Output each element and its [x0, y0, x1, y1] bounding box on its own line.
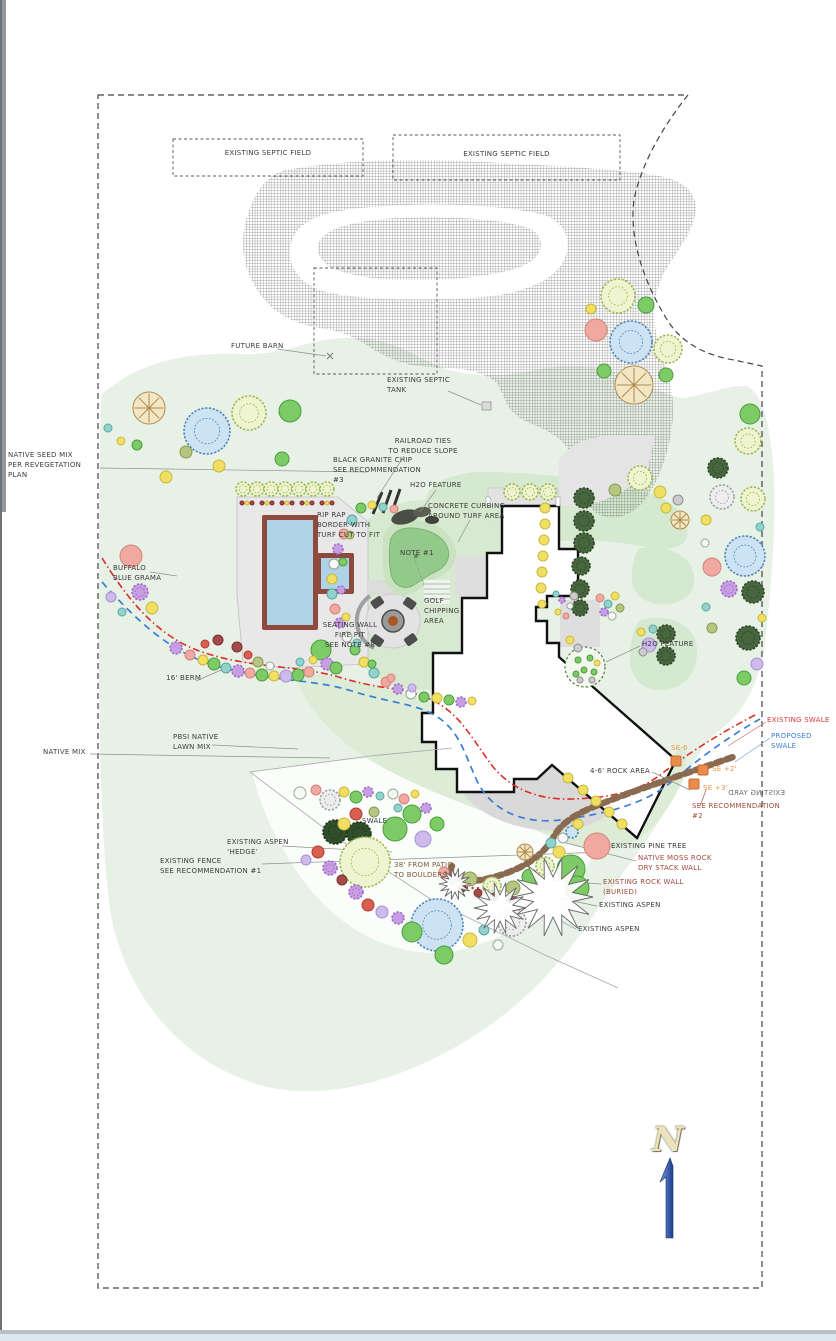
teal-plant-symbol [394, 804, 402, 812]
yellow-plant-symbol [305, 501, 309, 505]
green-plant-symbol [444, 695, 454, 705]
window-left-strip [2, 0, 6, 512]
yellow-plant-symbol [555, 609, 561, 615]
green-plant-symbol [330, 662, 342, 674]
lavender-plant-symbol [376, 906, 388, 918]
sketch-lime-plant-symbol [628, 466, 652, 490]
teal-plant-symbol [604, 600, 612, 608]
purple-plant-symbol [170, 642, 182, 654]
yellow-plant-symbol [566, 636, 574, 644]
maroon-plant-symbol [232, 642, 242, 652]
grey-plant-symbol [574, 644, 582, 652]
green-plant-symbol [597, 364, 611, 378]
olive-plant-symbol [369, 807, 379, 817]
pink-plant-symbol [304, 667, 314, 677]
pink-plant-symbol [584, 833, 610, 859]
white-plant-symbol [329, 559, 339, 569]
pine-plant-symbol [574, 511, 594, 531]
sketch-lime-plant-symbol [504, 484, 520, 500]
green-plant-symbol [638, 297, 654, 313]
yellow-plant-symbol [359, 657, 369, 667]
olive-plant-symbol [180, 446, 192, 458]
green-plant-symbol [403, 805, 421, 823]
green-plant-symbol [368, 660, 376, 668]
olive-plant-symbol [253, 657, 263, 667]
pine-plant-symbol [742, 581, 764, 603]
yellow-plant-symbol [327, 574, 337, 584]
grey-plant-symbol [639, 648, 647, 656]
olive-plant-symbol [616, 604, 624, 612]
red-plant-symbol [350, 808, 362, 820]
purple-plant-symbol [337, 586, 345, 594]
lavender-plant-symbol [408, 684, 416, 692]
teal-plant-symbol [756, 523, 764, 531]
teal-plant-symbol [376, 792, 384, 800]
patio-west [455, 556, 487, 596]
purple-plant-symbol [392, 912, 404, 924]
sketch-lime-plant-symbol [340, 837, 390, 887]
sketch-lime-plant-symbol [278, 482, 292, 496]
sketch-lime-plant-symbol [264, 482, 278, 496]
grey-plant-symbol [570, 592, 578, 600]
lavender-plant-symbol [751, 658, 763, 670]
pine-plant-symbol [657, 625, 675, 643]
white-plant-symbol [608, 612, 616, 620]
pink-plant-symbol [585, 319, 607, 341]
teal-plant-symbol [104, 424, 112, 432]
yellow-plant-symbol [411, 790, 419, 798]
yellow-plant-symbol [213, 460, 225, 472]
pink-plant-symbol [596, 594, 604, 602]
orange-plant-symbol [698, 765, 708, 775]
yellow-plant-symbol [265, 501, 269, 505]
purple-plant-symbol [456, 697, 466, 707]
yellow-plant-symbol [325, 501, 329, 505]
teal-plant-symbol [369, 668, 379, 678]
maroon-plant-symbol [270, 501, 274, 505]
yellow-plant-symbol [617, 819, 627, 829]
white-plant-symbol [266, 662, 274, 670]
white-plant-symbol [701, 539, 709, 547]
pine-plant-symbol [574, 488, 594, 508]
sketch-lime-plant-symbol [540, 484, 556, 500]
yellow-plant-symbol [573, 819, 583, 829]
yellow-plant-symbol [537, 567, 547, 577]
white-plant-symbol [493, 940, 503, 950]
green-plant-symbol [430, 817, 444, 831]
maroon-plant-symbol [260, 501, 264, 505]
lavender-plant-symbol [301, 855, 311, 865]
teal-plant-symbol [649, 625, 657, 633]
greysketch-plant-symbol [320, 790, 340, 810]
green-plant-symbol [435, 946, 453, 964]
green-plant-symbol [279, 400, 301, 422]
sketch-lime-plant-symbol [306, 482, 320, 496]
teal-plant-symbol [379, 503, 387, 511]
purple-plant-symbol [333, 544, 343, 554]
pine-plant-symbol [572, 600, 588, 616]
yellow-plant-symbol [563, 773, 573, 783]
purple-plant-symbol [721, 581, 737, 597]
sketch-lime-plant-symbol [236, 482, 250, 496]
maroon-plant-symbol [300, 501, 304, 505]
green-plant-symbol [339, 558, 347, 566]
window-bottom-bar[interactable] [0, 1330, 836, 1341]
yellow-plant-symbol [661, 503, 671, 513]
red-plant-symbol [244, 651, 252, 659]
yellow-plant-symbol [586, 304, 596, 314]
pine-plant-symbol [657, 647, 675, 665]
yellow-plant-symbol [468, 697, 476, 705]
white-plant-symbol [294, 787, 306, 799]
teal-plant-symbol [553, 591, 559, 597]
red-plant-symbol [362, 899, 374, 911]
north-letter: N [638, 1120, 698, 1160]
yellow-plant-symbol [245, 501, 249, 505]
site-plan-canvas [0, 0, 836, 1341]
grey-plant-symbol [577, 677, 583, 683]
yellow-plant-symbol [368, 501, 376, 509]
yellow-plant-symbol [553, 846, 565, 858]
sketch-blue-plant-symbol [610, 321, 652, 363]
green-plant-symbol [587, 655, 593, 661]
teal-plant-symbol [353, 639, 361, 647]
purple-plant-symbol [600, 608, 608, 616]
yellow-plant-symbol [117, 437, 125, 445]
red-plant-symbol [312, 846, 324, 858]
north-arrow: N [638, 1120, 698, 1250]
golf-steps [424, 580, 450, 604]
maroon-plant-symbol [320, 501, 324, 505]
purple-plant-symbol [393, 684, 403, 694]
green-plant-symbol [591, 669, 597, 675]
north-arrow-icon [653, 1156, 683, 1240]
greysketch-plant-symbol [710, 485, 734, 509]
yellow-plant-symbol [146, 602, 158, 614]
yellow-plant-symbol [637, 628, 645, 636]
purple-plant-symbol [132, 584, 148, 600]
yellow-plant-symbol [338, 818, 350, 830]
star-tan-plant-symbol [133, 392, 165, 424]
green-plant-symbol [419, 692, 429, 702]
maroon-plant-symbol [250, 501, 254, 505]
green-plant-symbol [275, 452, 289, 466]
maroon-plant-symbol [337, 875, 347, 885]
pink-plant-symbol [330, 604, 340, 614]
yellow-plant-symbol [591, 796, 601, 806]
purple-plant-symbol [363, 787, 373, 797]
sketch-blue-plant-symbol [725, 536, 765, 576]
yellow-plant-symbol [342, 613, 350, 621]
green-plant-symbol [383, 817, 407, 841]
maroon-plant-symbol [290, 501, 294, 505]
pink-plant-symbol [703, 558, 721, 576]
sketch-lime-plant-symbol [654, 335, 682, 363]
site-plan-page: { "north": { "letter": "N" }, "labels": … [0, 0, 836, 1341]
orange-plant-symbol [671, 756, 681, 766]
grey-plant-symbol [589, 677, 595, 683]
teal-plant-symbol [221, 663, 231, 673]
yellow-plant-symbol [758, 614, 766, 622]
maroon-plant-symbol [280, 501, 284, 505]
green-plant-symbol [659, 368, 673, 382]
sketch-lime-plant-symbol [232, 396, 266, 430]
yellow-plant-symbol [432, 693, 442, 703]
pine-plant-symbol [572, 557, 590, 575]
maroon-plant-symbol [310, 501, 314, 505]
green-plant-symbol [256, 669, 268, 681]
teal-plant-symbol [296, 658, 304, 666]
yellow-plant-symbol [463, 933, 477, 947]
yellow-plant-symbol [594, 660, 600, 666]
yellow-plant-symbol [285, 501, 289, 505]
green-plant-symbol [208, 658, 220, 670]
purple-plant-symbol [232, 665, 244, 677]
olive-plant-symbol [609, 484, 621, 496]
pink-plant-symbol [387, 674, 395, 682]
yellow-plant-symbol [701, 515, 711, 525]
pink-plant-symbol [399, 794, 409, 804]
yellow-plant-symbol [198, 655, 208, 665]
yellow-plant-symbol [578, 785, 588, 795]
pine-plant-symbol [736, 626, 760, 650]
yellow-plant-symbol [604, 807, 614, 817]
purple-plant-symbol [421, 803, 431, 813]
septic-tank-marker [482, 402, 491, 410]
yellow-plant-symbol [540, 503, 550, 513]
maroon-plant-symbol [474, 889, 482, 897]
yellow-plant-symbol [538, 600, 546, 608]
pink-plant-symbol [185, 650, 195, 660]
yellow-plant-symbol [539, 535, 549, 545]
maroon-plant-symbol [330, 501, 334, 505]
sketch-lime-plant-symbol [522, 484, 538, 500]
white-plant-symbol [567, 603, 573, 609]
purple-plant-symbol [323, 861, 337, 875]
green-plant-symbol [740, 404, 760, 424]
sketch-lime-plant-symbol [601, 279, 635, 313]
sketch-lime-plant-symbol [735, 428, 761, 454]
teal-plant-symbol [347, 515, 357, 525]
green-plant-symbol [581, 667, 587, 673]
teal-plant-symbol [479, 925, 489, 935]
pink-plant-symbol [390, 505, 398, 513]
red-plant-symbol [201, 640, 209, 648]
yellow-plant-symbol [160, 471, 172, 483]
yellow-plant-symbol [611, 592, 619, 600]
lavender-plant-symbol [415, 831, 431, 847]
lavender-plant-symbol [280, 670, 292, 682]
pink-plant-symbol [245, 668, 255, 678]
green-plant-symbol [350, 791, 362, 803]
star-tan-plant-symbol [517, 844, 533, 860]
grey-plant-symbol [673, 495, 683, 505]
green-plant-symbol [402, 922, 422, 942]
green-plant-symbol [737, 671, 751, 685]
yellow-plant-symbol [339, 787, 349, 797]
sketch-lime-plant-symbol [741, 487, 765, 511]
sketch-blue-plant-symbol [184, 408, 230, 454]
sketch-lime-plant-symbol [320, 482, 334, 496]
sketch-lime-plant-symbol [250, 482, 264, 496]
teal-plant-symbol [702, 603, 710, 611]
yellow-plant-symbol [538, 551, 548, 561]
yellow-plant-symbol [654, 486, 666, 498]
pink-plant-symbol [120, 545, 142, 567]
lavender-plant-symbol [106, 592, 116, 602]
purple-plant-symbol [559, 597, 565, 603]
green-plant-symbol [132, 440, 142, 450]
pine-plant-symbol [708, 458, 728, 478]
purple-plant-symbol [349, 885, 363, 899]
teal-plant-symbol [546, 838, 556, 848]
maroon-plant-symbol [213, 635, 223, 645]
white-plant-symbol [388, 789, 398, 799]
olive-plant-symbol [346, 531, 354, 539]
sketch-lime-plant-symbol [292, 482, 306, 496]
maroon-plant-symbol [240, 501, 244, 505]
white-plant-symbol [342, 632, 352, 642]
green-plant-symbol [573, 671, 579, 677]
green-plant-symbol [292, 669, 304, 681]
teal-plant-symbol [118, 608, 126, 616]
yellow-plant-symbol [540, 519, 550, 529]
green-plant-symbol [575, 657, 581, 663]
pink-plant-symbol [311, 785, 321, 795]
pine-plant-symbol [574, 533, 594, 553]
star-tan-plant-symbol [615, 366, 653, 404]
green-plant-symbol [356, 503, 366, 513]
yellow-plant-symbol [309, 656, 317, 664]
yellow-plant-symbol [536, 583, 546, 593]
star-tan-plant-symbol [671, 511, 689, 529]
olive-plant-symbol [707, 623, 717, 633]
orange-plant-symbol [689, 779, 699, 789]
yellow-plant-symbol [269, 671, 279, 681]
pink-plant-symbol [563, 613, 569, 619]
teal-plant-symbol [327, 589, 337, 599]
